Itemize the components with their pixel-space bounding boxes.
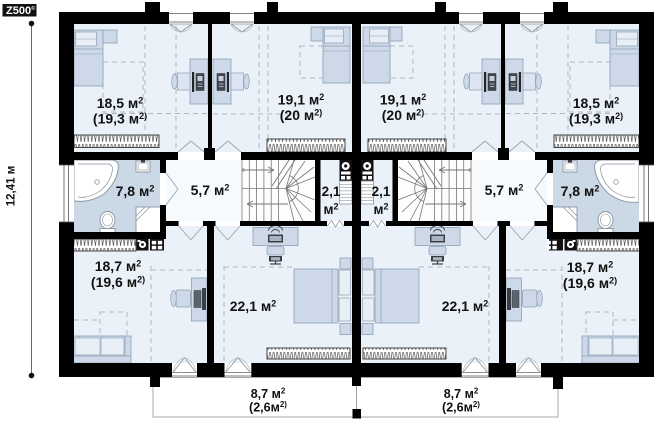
- svg-text:22,1 м2: 22,1 м2: [442, 298, 489, 314]
- svg-text:18,5 м2: 18,5 м2: [573, 95, 620, 111]
- svg-text:7,8 м2: 7,8 м2: [561, 183, 600, 199]
- svg-text:18,7 м2: 18,7 м2: [95, 258, 142, 274]
- svg-text:(19,6 м2): (19,6 м2): [91, 274, 145, 290]
- svg-text:8,7 м2: 8,7 м2: [444, 387, 479, 402]
- svg-text:2,1: 2,1: [372, 184, 391, 199]
- svg-text:(19,3 м2): (19,3 м2): [93, 111, 147, 127]
- svg-text:8,7 м2: 8,7 м2: [251, 387, 286, 402]
- svg-text:5,7 м2: 5,7 м2: [191, 182, 230, 198]
- svg-text:22,1 м2: 22,1 м2: [230, 298, 277, 314]
- svg-text:7,8 м2: 7,8 м2: [116, 183, 155, 199]
- svg-text:19,1 м2: 19,1 м2: [278, 92, 325, 108]
- svg-text:(19,3 м2): (19,3 м2): [569, 111, 623, 127]
- svg-text:19,1 м2: 19,1 м2: [380, 92, 427, 108]
- svg-text:18,5 м2: 18,5 м2: [97, 95, 144, 111]
- svg-text:(19,6 м2): (19,6 м2): [563, 275, 617, 291]
- svg-text:Z500©: Z500©: [6, 5, 35, 17]
- svg-text:5,7 м2: 5,7 м2: [485, 182, 524, 198]
- svg-text:18,7 м2: 18,7 м2: [567, 259, 614, 275]
- svg-text:12,41 м: 12,41 м: [6, 166, 18, 206]
- svg-text:2,1: 2,1: [322, 184, 341, 199]
